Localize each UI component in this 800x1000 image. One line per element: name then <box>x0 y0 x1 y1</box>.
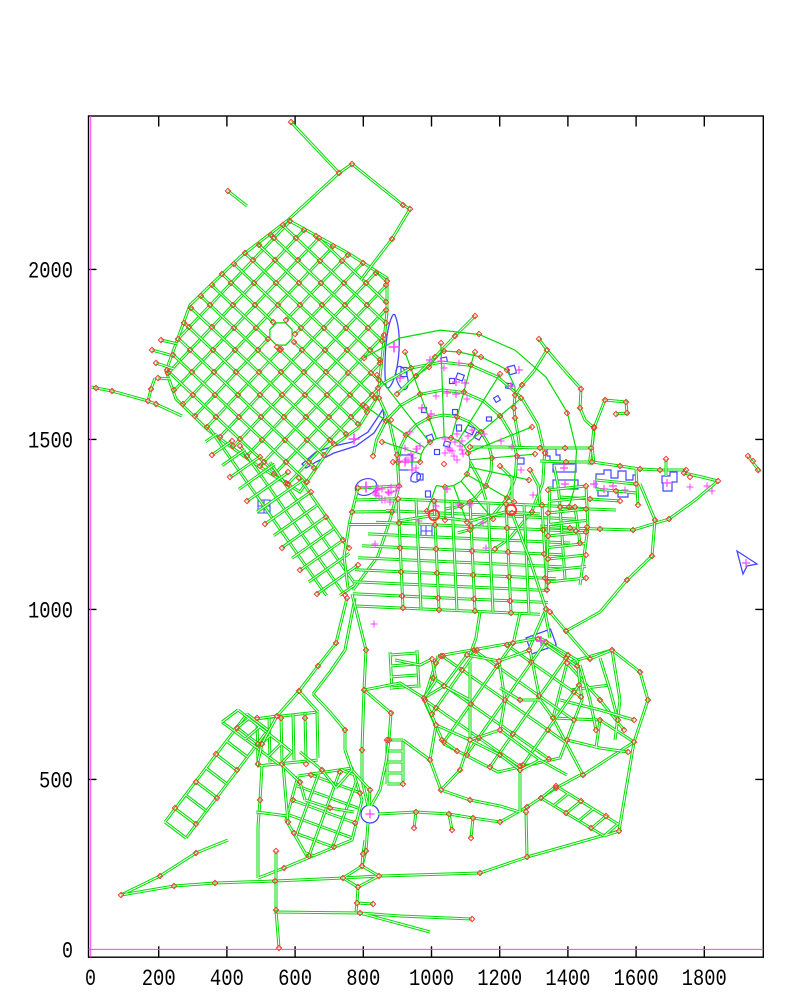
svg-text:400: 400 <box>210 966 244 992</box>
svg-text:1500: 1500 <box>28 428 73 454</box>
svg-text:800: 800 <box>346 966 380 992</box>
svg-text:2000: 2000 <box>28 258 73 284</box>
svg-text:1200: 1200 <box>477 966 522 992</box>
svg-text:1400: 1400 <box>545 966 590 992</box>
svg-text:1000: 1000 <box>28 598 73 624</box>
svg-text:500: 500 <box>39 768 73 794</box>
svg-text:0: 0 <box>62 938 73 964</box>
svg-text:1800: 1800 <box>682 966 727 992</box>
svg-text:0: 0 <box>85 966 96 992</box>
svg-text:200: 200 <box>142 966 176 992</box>
svg-text:600: 600 <box>278 966 312 992</box>
svg-text:1600: 1600 <box>614 966 659 992</box>
svg-text:1000: 1000 <box>409 966 454 992</box>
